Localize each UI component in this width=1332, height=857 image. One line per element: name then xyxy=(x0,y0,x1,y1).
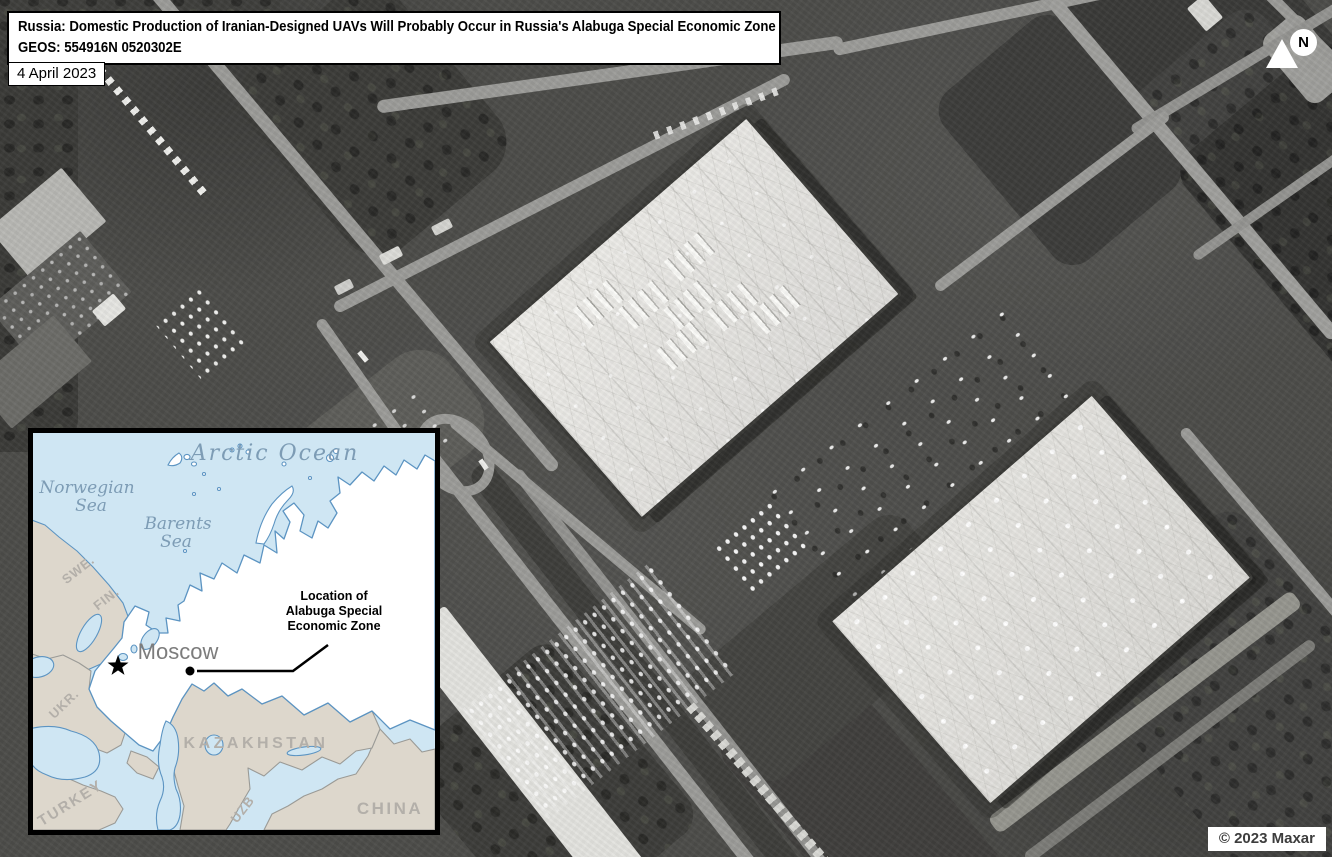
geo-reference-text: GEOS: 554916N 0520302E xyxy=(18,38,680,59)
alabuga-callout-line2: Alabuga Special xyxy=(286,604,383,618)
truck-on-road-1 xyxy=(357,350,369,362)
moscow-label: Moscow xyxy=(138,639,219,664)
map-lake-ladoga xyxy=(119,654,128,661)
kazakhstan-label: KAZAKHSTAN xyxy=(184,735,329,752)
car-parking-lot xyxy=(153,284,247,380)
alabuga-location-dot xyxy=(186,667,195,676)
roof-vent-cluster xyxy=(664,232,716,282)
railcar-train-top-left xyxy=(96,66,208,198)
title-text: Russia: Domestic Production of Iranian-D… xyxy=(18,17,680,38)
map-island xyxy=(218,488,221,491)
norwegian-sea-label-line1: Norwegian xyxy=(38,478,134,498)
roof-vent-cluster xyxy=(656,321,708,371)
title-banner: Russia: Domestic Production of Iranian-D… xyxy=(7,11,781,65)
north-label: N xyxy=(1298,34,1309,51)
inset-location-map: Arctic Ocean Norwegian Sea Barents Sea S… xyxy=(28,428,440,835)
alabuga-callout-line1: Location of xyxy=(300,589,368,603)
barents-sea-label-line2: Sea xyxy=(160,532,192,552)
map-island xyxy=(309,477,312,480)
china-label: CHINA xyxy=(357,799,423,818)
map-island xyxy=(203,473,206,476)
map-island xyxy=(193,493,196,496)
annotated-satellite-image: Russia: Domestic Production of Iranian-D… xyxy=(0,0,1332,857)
date-label: 4 April 2023 xyxy=(8,62,105,86)
alabuga-callout-line3: Economic Zone xyxy=(287,619,380,633)
map-island xyxy=(184,454,190,459)
roof-vent-cluster xyxy=(618,280,670,330)
roof-vent-cluster xyxy=(707,282,759,332)
map-lake-onega xyxy=(131,645,137,653)
imagery-credit: © 2023 Maxar xyxy=(1208,827,1326,851)
inset-map-svg: Arctic Ocean Norwegian Sea Barents Sea S… xyxy=(33,433,435,830)
roof-vent-cluster xyxy=(573,279,625,329)
norwegian-sea-label-line2: Sea xyxy=(75,496,107,516)
roof-vent-cluster xyxy=(750,285,802,335)
vehicle-row-above-building1 xyxy=(653,84,787,139)
north-label-badge: N xyxy=(1290,29,1317,56)
arctic-ocean-label: Arctic Ocean xyxy=(189,441,360,466)
barents-sea-label-line1: Barents xyxy=(143,514,212,534)
